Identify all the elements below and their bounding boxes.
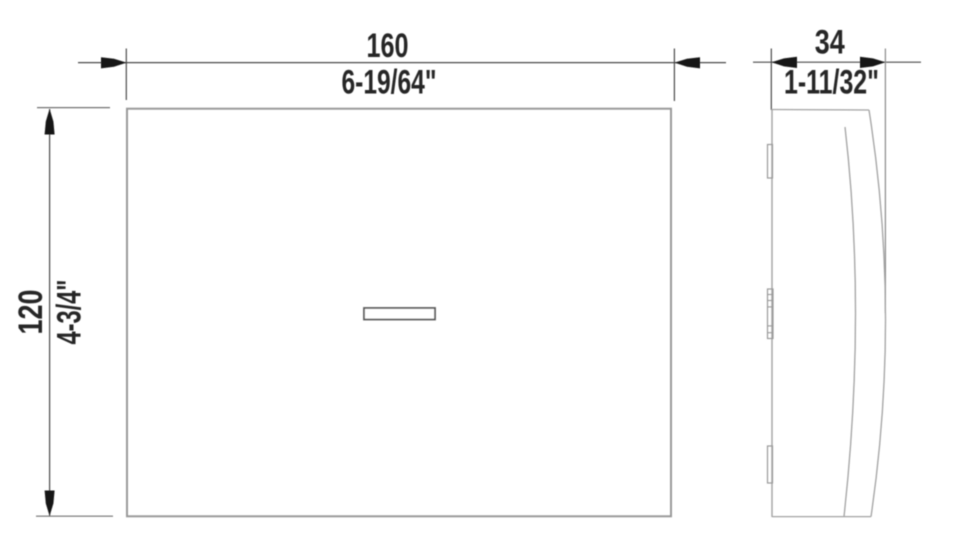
svg-text:120: 120 (12, 290, 50, 335)
svg-text:1-11/32": 1-11/32" (784, 64, 879, 102)
svg-text:160: 160 (367, 27, 409, 65)
svg-text:34: 34 (815, 24, 845, 62)
svg-text:4-3/4": 4-3/4" (51, 280, 89, 345)
svg-text:6-19/64": 6-19/64" (342, 64, 437, 102)
